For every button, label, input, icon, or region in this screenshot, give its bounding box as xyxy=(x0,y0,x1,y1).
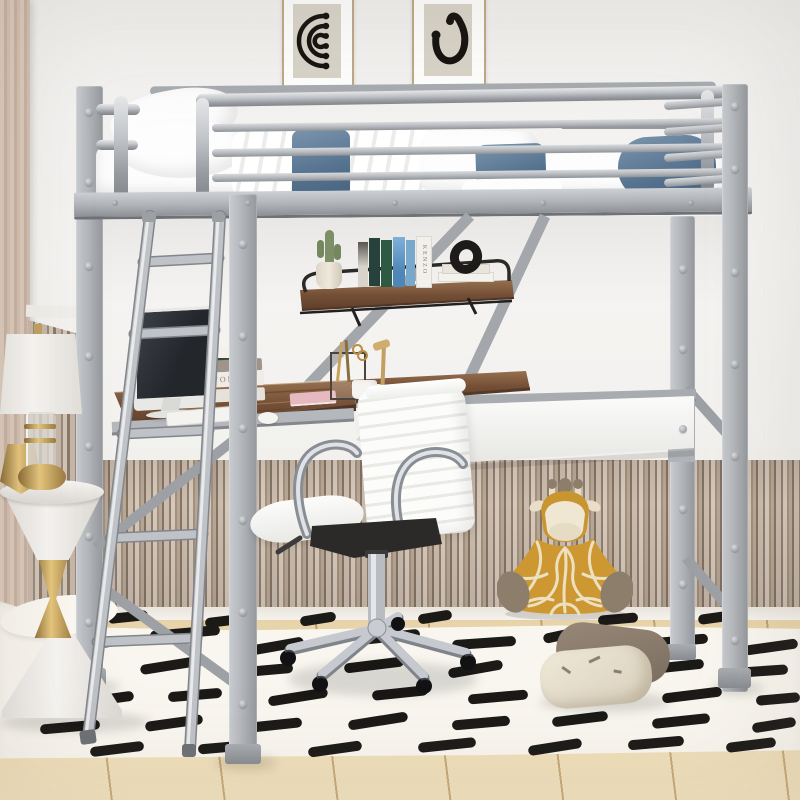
bed-deck-rail xyxy=(74,187,752,219)
floor-pillow-front xyxy=(538,643,655,711)
wall-art-frame-right xyxy=(412,0,486,92)
arc-print-icon xyxy=(293,4,341,78)
shelf-book-3 xyxy=(381,240,392,287)
pillow-stamp-3 xyxy=(613,669,621,673)
pillow-stamp-2 xyxy=(588,656,600,664)
wall-art-frame-left xyxy=(282,0,354,94)
cactus-arm-left xyxy=(317,240,324,258)
lamp-shade xyxy=(0,334,82,414)
shelf-book-kenzo: KENZO xyxy=(416,236,432,288)
wall-art-right-panel xyxy=(424,4,472,76)
mouse xyxy=(258,412,278,424)
shelf-book-4 xyxy=(393,237,405,287)
bed-foot-front-left xyxy=(225,744,261,764)
hook-print-icon xyxy=(424,4,472,76)
bed-post-front-left xyxy=(229,194,257,762)
room-photo: KENZO NFOLK xyxy=(0,0,800,800)
cactus-stem xyxy=(325,230,334,266)
pillow-stamp-1 xyxy=(561,666,571,674)
cactus-pot xyxy=(316,262,342,289)
chair-back xyxy=(356,382,475,540)
shelf-book-1 xyxy=(358,242,368,287)
headboard-post xyxy=(114,96,128,198)
shelf-book-spine-text: KENZO xyxy=(421,237,427,283)
bed-post-rear-right xyxy=(670,216,695,654)
bed-foot-front-right xyxy=(718,668,751,688)
imac-monitor xyxy=(132,306,216,422)
guardrail-corner-left xyxy=(196,98,209,198)
imac-screen xyxy=(134,306,212,411)
bed-foot-rear-right xyxy=(666,644,696,660)
denim-pillow-left xyxy=(292,130,350,198)
lamp-gold-base xyxy=(18,464,66,490)
lamp-gold-ring-2 xyxy=(24,438,56,443)
giraffe-plush xyxy=(497,476,633,620)
wall-art-left-panel xyxy=(293,4,341,78)
chair-shadow xyxy=(288,662,478,696)
bed-post-front-right xyxy=(722,84,748,692)
cactus-arm-right xyxy=(334,244,341,260)
lamp-gold-ring-1 xyxy=(24,424,56,429)
shelf-book-2 xyxy=(369,238,380,286)
shelf-book-5 xyxy=(406,240,415,286)
